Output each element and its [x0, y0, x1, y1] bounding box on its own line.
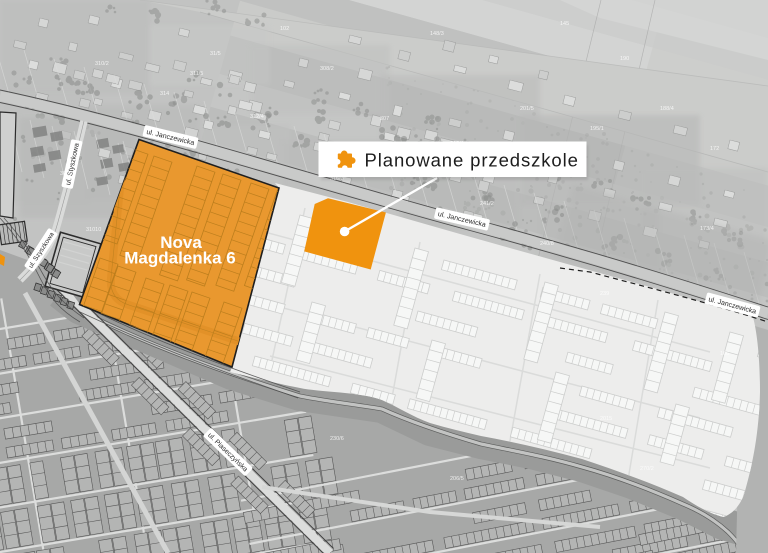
svg-text:166: 166	[720, 351, 729, 357]
svg-text:2015: 2015	[600, 416, 612, 422]
svg-text:239: 239	[600, 291, 609, 297]
svg-text:307: 307	[380, 116, 389, 122]
svg-text:102: 102	[280, 26, 289, 32]
svg-text:173/4: 173/4	[700, 226, 714, 232]
svg-text:230/6: 230/6	[330, 436, 344, 442]
svg-text:206/5: 206/5	[450, 476, 464, 482]
svg-text:240/8: 240/8	[540, 241, 554, 247]
svg-text:188/4: 188/4	[660, 106, 674, 112]
svg-text:172: 172	[710, 146, 719, 152]
svg-text:190: 190	[620, 56, 629, 62]
svg-text:195/1: 195/1	[590, 126, 604, 132]
svg-text:311/5: 311/5	[190, 71, 203, 77]
svg-text:3003: 3003	[60, 171, 72, 177]
svg-text:241/2: 241/2	[480, 201, 494, 207]
svg-text:31010: 31010	[86, 227, 101, 233]
svg-text:145: 145	[560, 21, 569, 27]
svg-text:314: 314	[160, 91, 169, 97]
svg-text:201/5: 201/5	[520, 106, 534, 112]
svg-text:148/3: 148/3	[430, 31, 444, 37]
svg-text:270/2: 270/2	[640, 466, 654, 472]
svg-text:308/2: 308/2	[320, 66, 334, 72]
svg-text:Planowane przedszkole: Planowane przedszkole	[365, 150, 579, 171]
svg-text:312/4: 312/4	[250, 114, 264, 120]
svg-text:31/5: 31/5	[210, 51, 221, 57]
svg-text:Magdalenka 6: Magdalenka 6	[124, 249, 236, 268]
svg-text:310/2: 310/2	[95, 61, 109, 67]
